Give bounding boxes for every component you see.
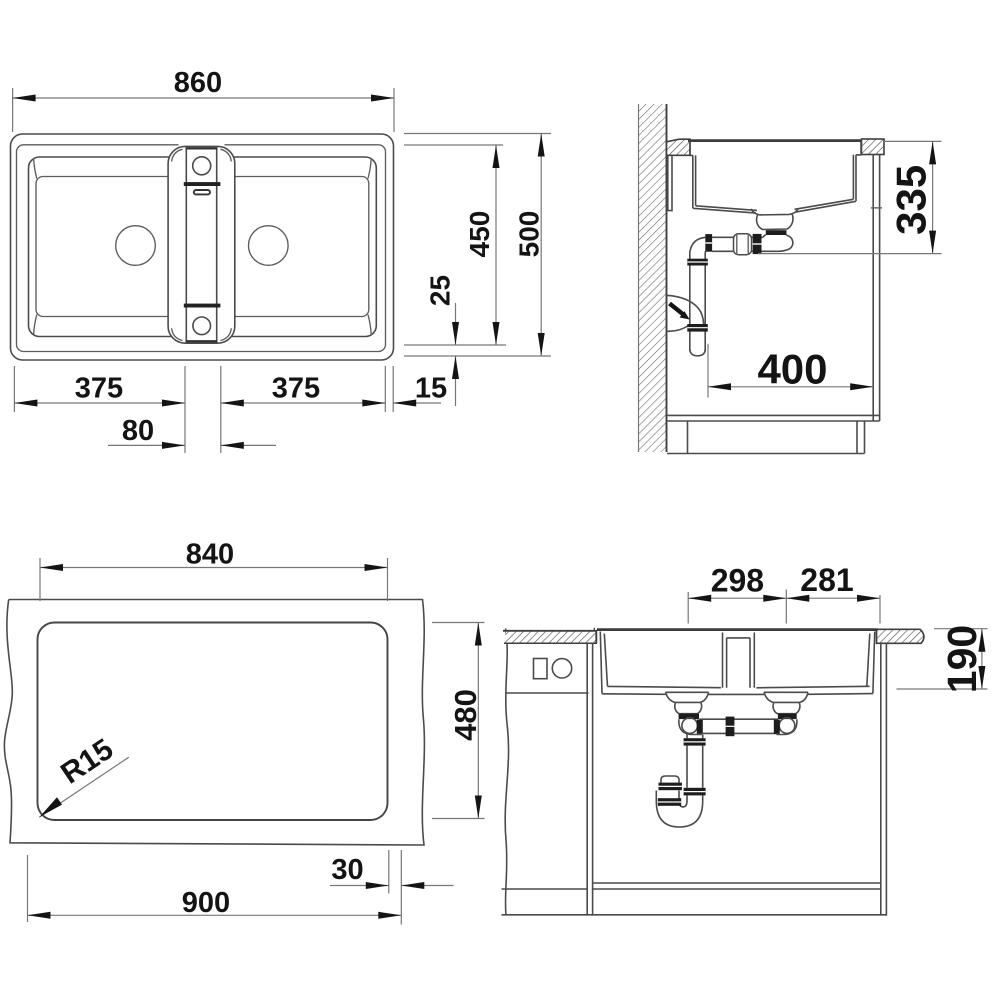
svg-text:30: 30: [331, 854, 363, 886]
svg-text:450: 450: [464, 211, 495, 258]
svg-text:500: 500: [514, 211, 545, 258]
svg-text:281: 281: [800, 562, 853, 598]
svg-text:190: 190: [939, 625, 985, 693]
svg-text:335: 335: [888, 165, 935, 235]
svg-text:25: 25: [425, 275, 456, 306]
svg-text:80: 80: [122, 415, 154, 447]
svg-text:375: 375: [75, 373, 123, 405]
svg-text:298: 298: [711, 562, 764, 598]
svg-text:375: 375: [272, 373, 320, 405]
svg-text:15: 15: [415, 373, 447, 405]
svg-text:840: 840: [186, 539, 234, 571]
svg-text:400: 400: [757, 345, 827, 392]
svg-text:860: 860: [174, 67, 222, 99]
svg-text:900: 900: [182, 887, 230, 919]
svg-text:480: 480: [448, 689, 483, 741]
